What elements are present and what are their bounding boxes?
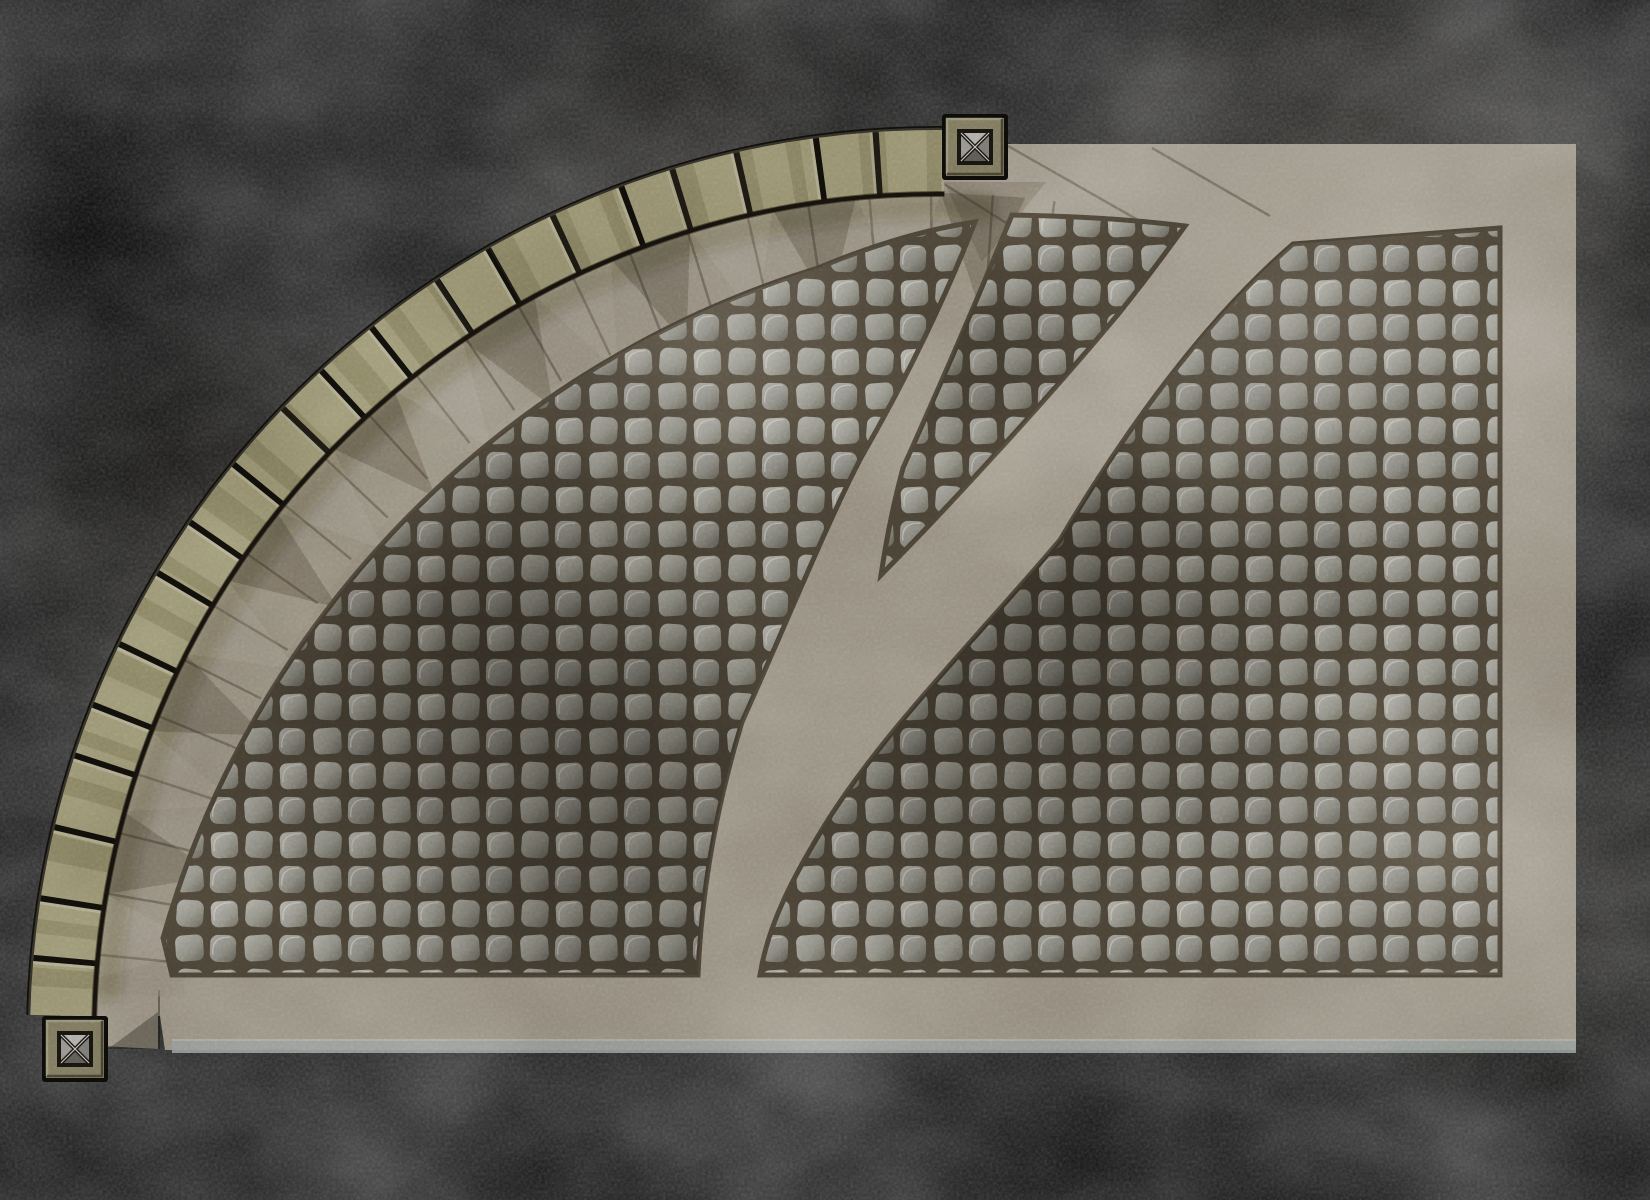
texture-noise-fine — [0, 0, 1650, 1200]
layer-noise — [0, 0, 1650, 1200]
battlemap-stage — [0, 0, 1650, 1200]
battlemap-scene — [0, 0, 1650, 1200]
